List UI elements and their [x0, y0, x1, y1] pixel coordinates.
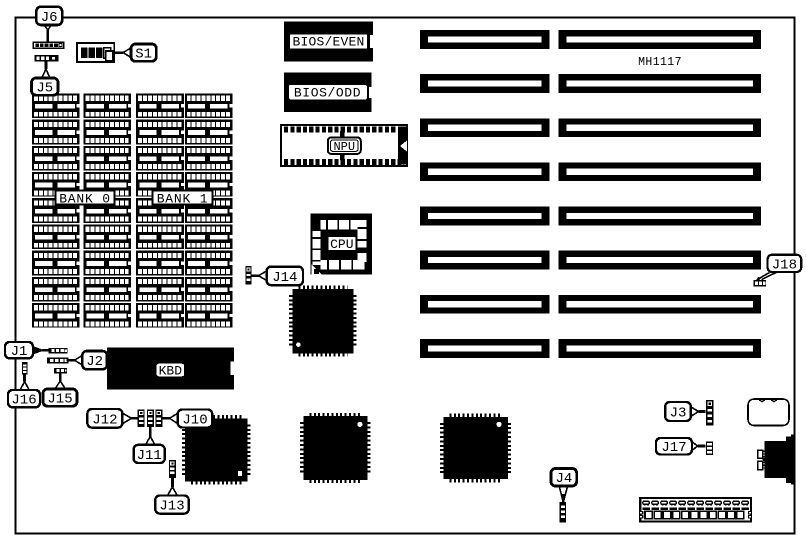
svg-text:J10: J10	[182, 413, 207, 429]
svg-text:J5: J5	[36, 81, 53, 97]
svg-text:J12: J12	[92, 412, 117, 428]
svg-text:J15: J15	[47, 392, 72, 408]
svg-text:S1: S1	[135, 47, 152, 63]
svg-text:BIOS/EVEN: BIOS/EVEN	[292, 35, 364, 50]
svg-text:J13: J13	[159, 499, 184, 515]
svg-text:BANK 1: BANK 1	[157, 191, 209, 206]
svg-text:J16: J16	[11, 393, 36, 409]
svg-text:J11: J11	[137, 448, 162, 464]
svg-text:J1: J1	[11, 344, 28, 360]
svg-text:J2: J2	[86, 354, 103, 370]
svg-text:J18: J18	[772, 257, 797, 273]
svg-text:NPU: NPU	[333, 140, 355, 154]
svg-text:KBD: KBD	[159, 363, 183, 378]
svg-text:BIOS/ODD: BIOS/ODD	[294, 86, 361, 101]
svg-text:MH1117: MH1117	[638, 56, 682, 69]
svg-text:J3: J3	[670, 406, 687, 422]
svg-text:CPU: CPU	[330, 237, 353, 252]
svg-text:J4: J4	[555, 471, 572, 487]
svg-text:J14: J14	[272, 270, 297, 286]
svg-text:J17: J17	[661, 440, 686, 456]
svg-text:BANK 0: BANK 0	[59, 191, 111, 206]
svg-text:J6: J6	[41, 10, 58, 26]
